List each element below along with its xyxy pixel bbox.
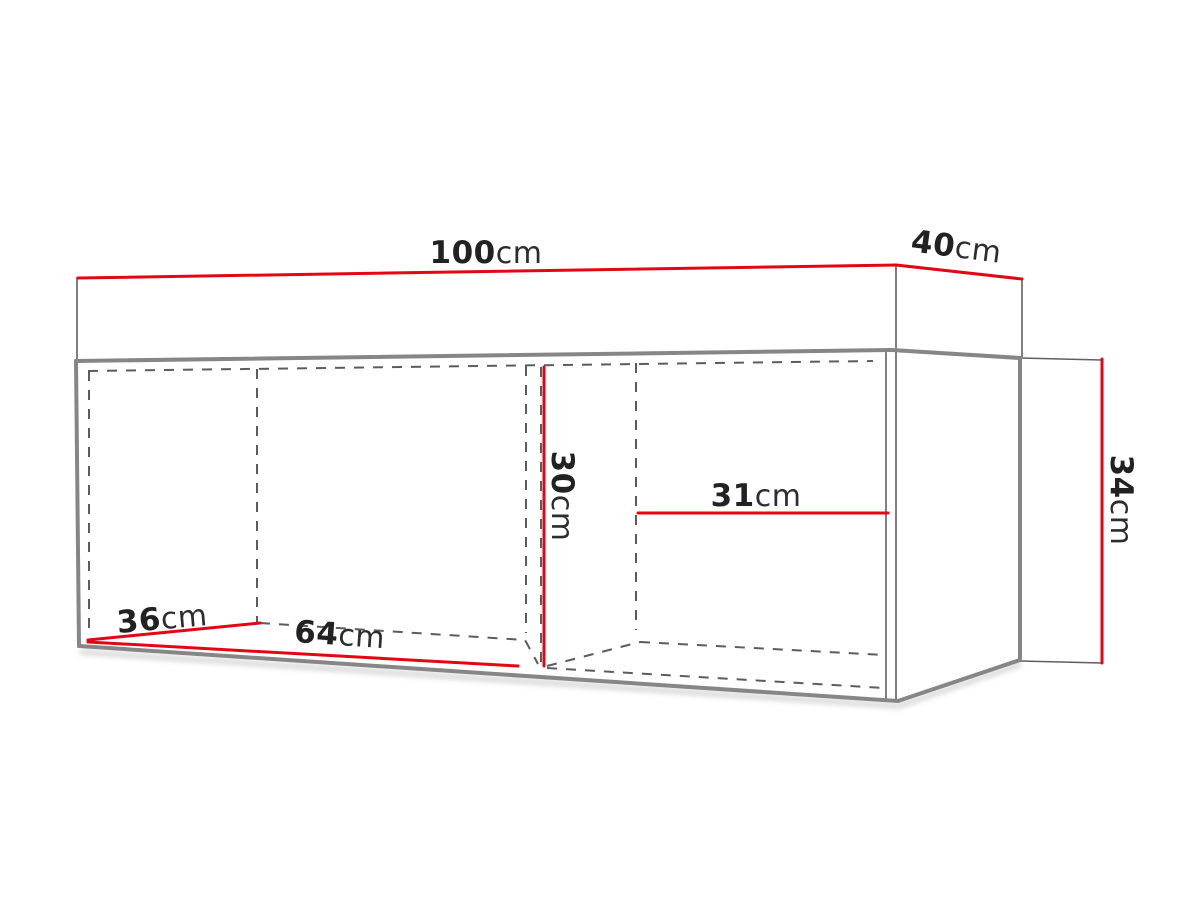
label-interior-depth: 36cm [115,597,209,641]
dimension-line-40cm [896,265,1022,279]
hidden-interior-lines [88,361,885,688]
interior-top-edge [88,361,873,371]
cabinet-drawing: 100cm 40cm 34cm 30cm 31cm 36cm 64cm [0,0,1200,899]
top-side-edge [892,350,1020,358]
label-depth: 40cm [909,223,1004,271]
thin-edges [77,264,1102,700]
top-front-edge [76,350,892,361]
dimension-diagram: 100cm 40cm 34cm 30cm 31cm 36cm 64cm [0,0,1200,899]
divider-bottom-depth-edge [547,642,640,666]
left-edge [76,361,79,646]
label-height: 34cm [1103,455,1139,546]
dimension-lines [78,265,1102,666]
dimension-labels: 100cm 40cm 34cm 30cm 31cm 36cm 64cm [115,223,1139,656]
extension-line-side-bottom [1020,661,1102,663]
label-total-width: 100cm [430,235,543,271]
bottom-front-edge [79,646,898,701]
label-right-compartment-width: 31cm [711,478,802,514]
interior-floor-back-edge-right [640,642,885,655]
extension-line-side-top [1020,358,1102,360]
label-interior-height: 30cm [544,451,580,542]
bottom-side-edge [898,660,1020,701]
label-left-compartment-width: 64cm [293,614,386,656]
